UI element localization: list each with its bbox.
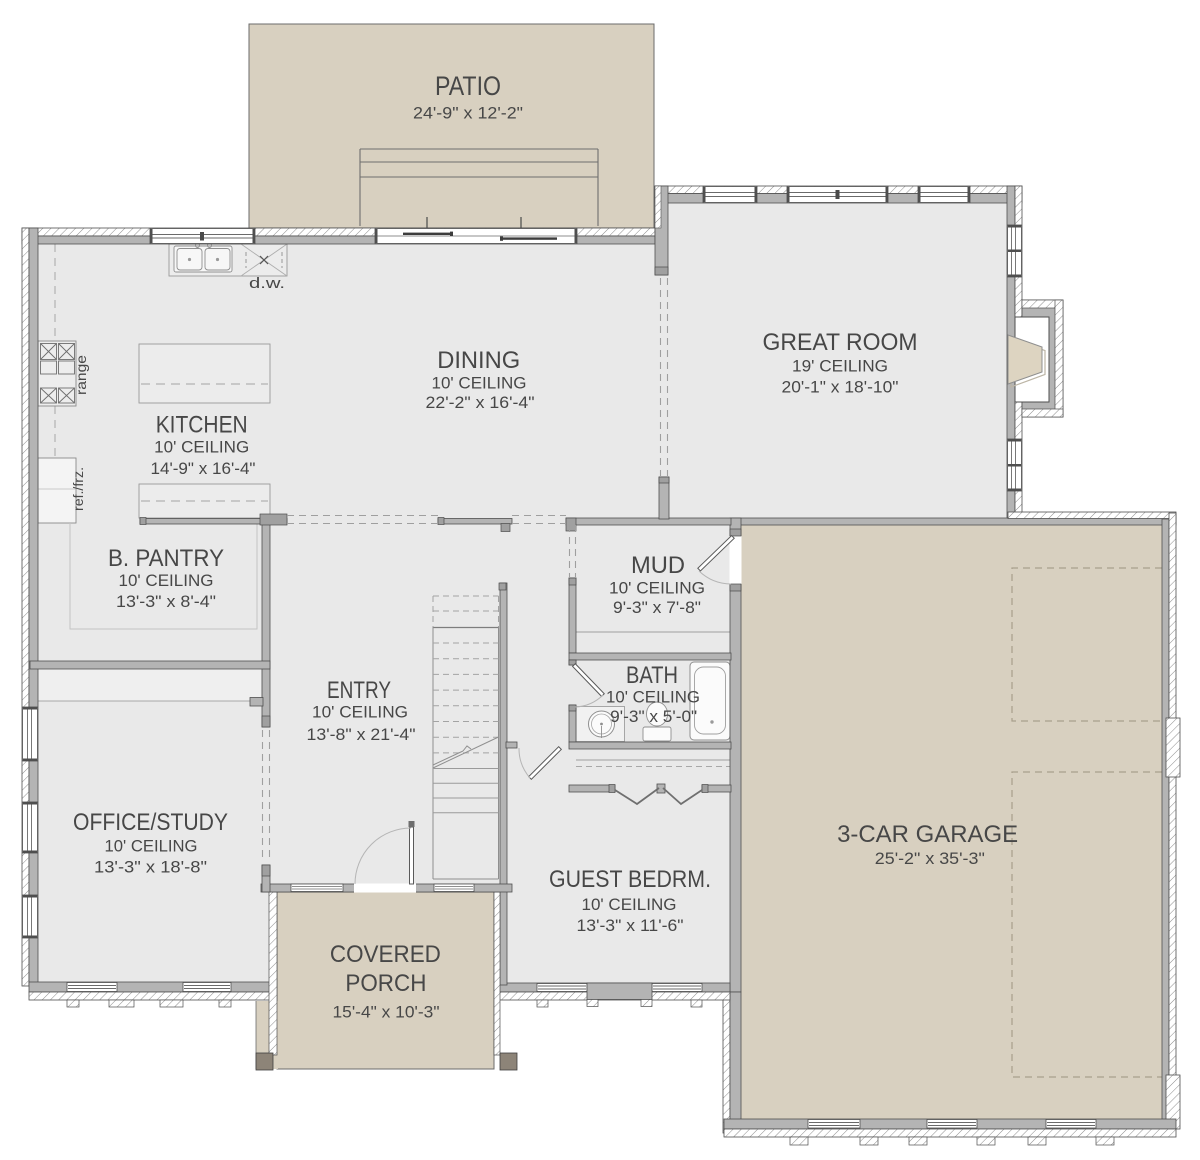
svg-text:BATH: BATH — [626, 662, 678, 689]
svg-text:B. PANTRY: B. PANTRY — [108, 545, 224, 572]
svg-text:PORCH: PORCH — [345, 970, 426, 997]
svg-text:GUEST BEDRM.: GUEST BEDRM. — [549, 866, 711, 893]
svg-text:14'-9" x 16'-4": 14'-9" x 16'-4" — [151, 460, 256, 478]
svg-text:3-CAR GARAGE: 3-CAR GARAGE — [837, 821, 1018, 848]
svg-text:22'-2" x 16'-4": 22'-2" x 16'-4" — [426, 394, 535, 412]
svg-text:13'-8" x 21'-4": 13'-8" x 21'-4" — [307, 726, 416, 744]
svg-text:10' CEILING: 10' CEILING — [105, 838, 198, 856]
svg-text:10' CEILING: 10' CEILING — [312, 704, 408, 722]
svg-text:KITCHEN: KITCHEN — [156, 412, 248, 439]
svg-text:MUD: MUD — [631, 552, 685, 579]
svg-text:24'-9" x 12'-2": 24'-9" x 12'-2" — [413, 105, 523, 123]
svg-text:10' CEILING: 10' CEILING — [582, 896, 677, 914]
svg-text:10' CEILING: 10' CEILING — [432, 375, 527, 393]
svg-text:20'-1" x 18'-10": 20'-1" x 18'-10" — [782, 378, 899, 396]
svg-text:PATIO: PATIO — [435, 71, 501, 101]
svg-text:DINING: DINING — [437, 347, 520, 374]
svg-text:13'-3" x 18'-8": 13'-3" x 18'-8" — [94, 859, 207, 877]
svg-text:OFFICE/STUDY: OFFICE/STUDY — [73, 809, 228, 836]
svg-text:15'-4" x 10'-3": 15'-4" x 10'-3" — [333, 1003, 440, 1021]
svg-text:10' CEILING: 10' CEILING — [154, 439, 249, 457]
svg-text:13'-3" x 8'-4": 13'-3" x 8'-4" — [116, 593, 216, 611]
svg-text:d.w.: d.w. — [249, 276, 285, 292]
svg-text:9'-3" x 7'-8": 9'-3" x 7'-8" — [613, 599, 701, 617]
svg-text:9'-3" x 5'-0": 9'-3" x 5'-0" — [610, 708, 697, 726]
svg-text:19' CEILING: 19' CEILING — [792, 358, 888, 376]
svg-text:range: range — [73, 355, 89, 395]
svg-text:13'-3" x 11'-6": 13'-3" x 11'-6" — [577, 917, 684, 935]
svg-text:ref./frz.: ref./frz. — [70, 467, 86, 511]
svg-text:25'-2" x 35'-3": 25'-2" x 35'-3" — [875, 850, 985, 868]
svg-text:ENTRY: ENTRY — [327, 677, 391, 704]
svg-text:10' CEILING: 10' CEILING — [609, 580, 705, 598]
svg-text:COVERED: COVERED — [330, 941, 441, 968]
svg-text:GREAT ROOM: GREAT ROOM — [763, 329, 918, 356]
svg-text:10' CEILING: 10' CEILING — [119, 572, 214, 590]
svg-text:10' CEILING: 10' CEILING — [606, 689, 700, 707]
